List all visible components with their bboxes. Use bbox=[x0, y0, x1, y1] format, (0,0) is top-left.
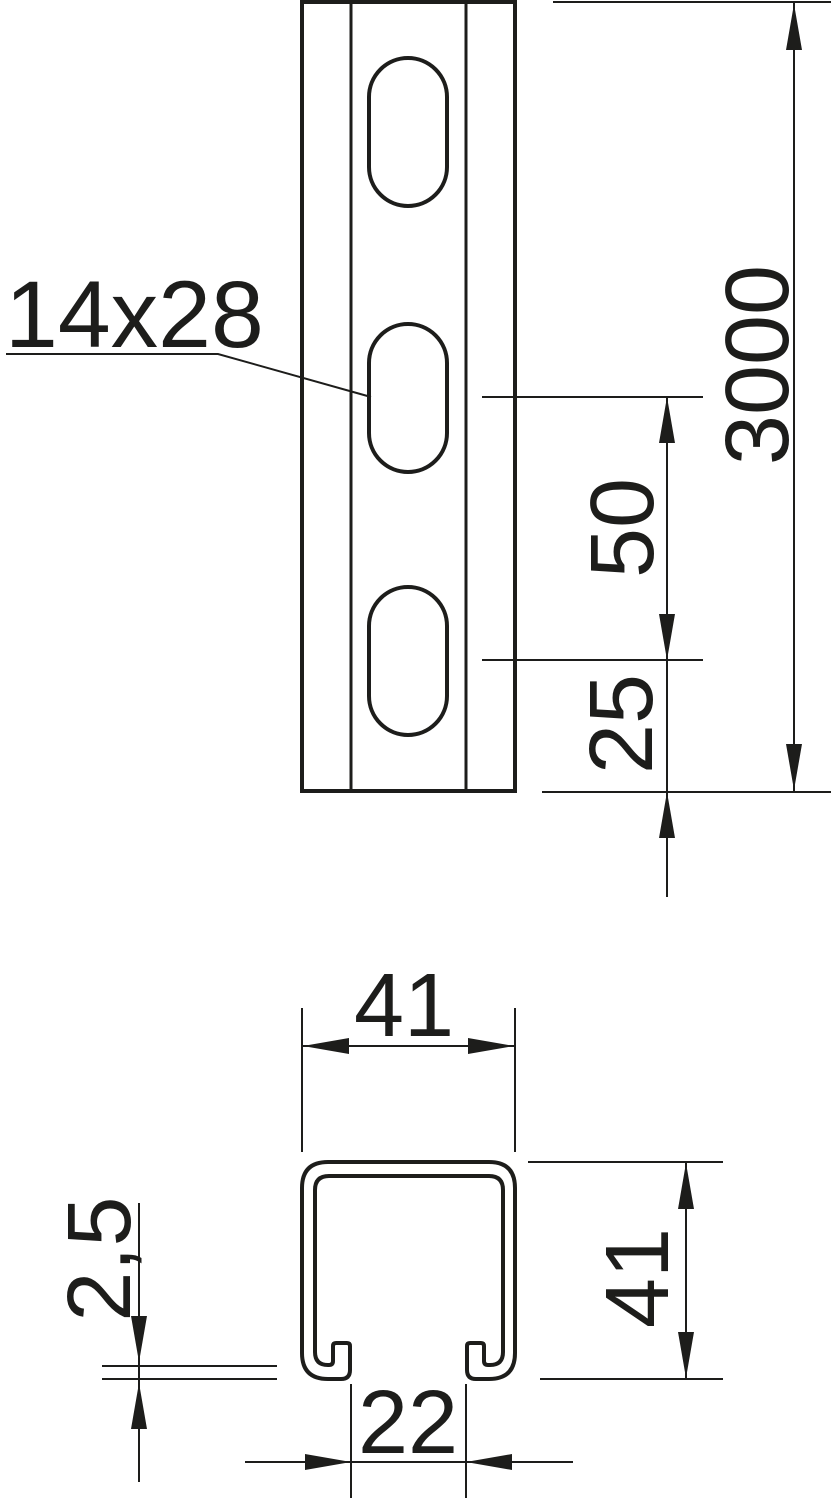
outer-width-value: 41 bbox=[354, 956, 454, 1056]
dim-slot-pitch-50: 50 bbox=[573, 397, 675, 897]
slot-size-label: 14x28 bbox=[5, 262, 264, 368]
material-thickness-value: 2,5 bbox=[50, 1196, 150, 1321]
arrow-down-icon bbox=[659, 614, 675, 660]
arrow-down-icon bbox=[786, 744, 802, 790]
dim-end-distance-25: 25 bbox=[572, 674, 675, 838]
arrow-left-icon bbox=[466, 1454, 512, 1470]
arrow-up-icon bbox=[659, 792, 675, 838]
arrow-right-icon bbox=[305, 1454, 351, 1470]
arrow-left-icon bbox=[303, 1038, 349, 1054]
arrow-down-icon bbox=[678, 1332, 694, 1378]
dim-slot-opening-22: 22 bbox=[245, 1373, 573, 1498]
arrow-up-icon bbox=[786, 4, 802, 50]
end-distance-value: 25 bbox=[572, 674, 672, 774]
slot-holes bbox=[369, 58, 447, 735]
slot-middle bbox=[369, 324, 447, 472]
strut-channel-drawing: 14x28 50 25 3000 bbox=[0, 0, 832, 1500]
slot-top bbox=[369, 58, 447, 206]
outer-height-value: 41 bbox=[588, 1228, 688, 1328]
dim-outer-height-41: 41 bbox=[528, 1162, 723, 1379]
arrow-up-icon bbox=[659, 397, 675, 443]
c-profile-outline bbox=[302, 1162, 515, 1379]
slot-pitch-value: 50 bbox=[573, 478, 673, 578]
front-view: 14x28 50 25 3000 bbox=[5, 0, 831, 897]
arrow-down-icon bbox=[131, 1316, 147, 1362]
profile-length-value: 3000 bbox=[708, 265, 808, 465]
section-view: 41 41 2,5 22 bbox=[50, 956, 723, 1498]
dim-profile-length-3000: 3000 bbox=[708, 3, 808, 791]
technical-drawing-page: 14x28 50 25 3000 bbox=[0, 0, 832, 1500]
arrow-up-icon bbox=[678, 1163, 694, 1209]
dim-outer-width-41: 41 bbox=[302, 956, 515, 1152]
dim-material-thickness-2-5: 2,5 bbox=[50, 1196, 277, 1482]
slot-opening-value: 22 bbox=[358, 1373, 458, 1473]
arrow-up-icon bbox=[131, 1383, 147, 1429]
arrow-right-icon bbox=[468, 1038, 514, 1054]
slot-bottom bbox=[369, 587, 447, 735]
